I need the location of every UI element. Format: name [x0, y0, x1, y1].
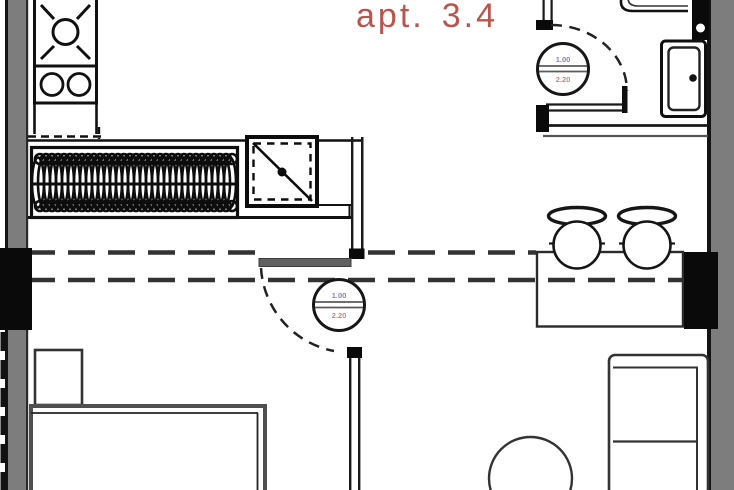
svg-text:2.20: 2.20	[332, 311, 347, 320]
svg-text:1.00: 1.00	[556, 55, 571, 64]
svg-text:1.00: 1.00	[332, 291, 347, 300]
svg-text:2.20: 2.20	[556, 75, 571, 84]
